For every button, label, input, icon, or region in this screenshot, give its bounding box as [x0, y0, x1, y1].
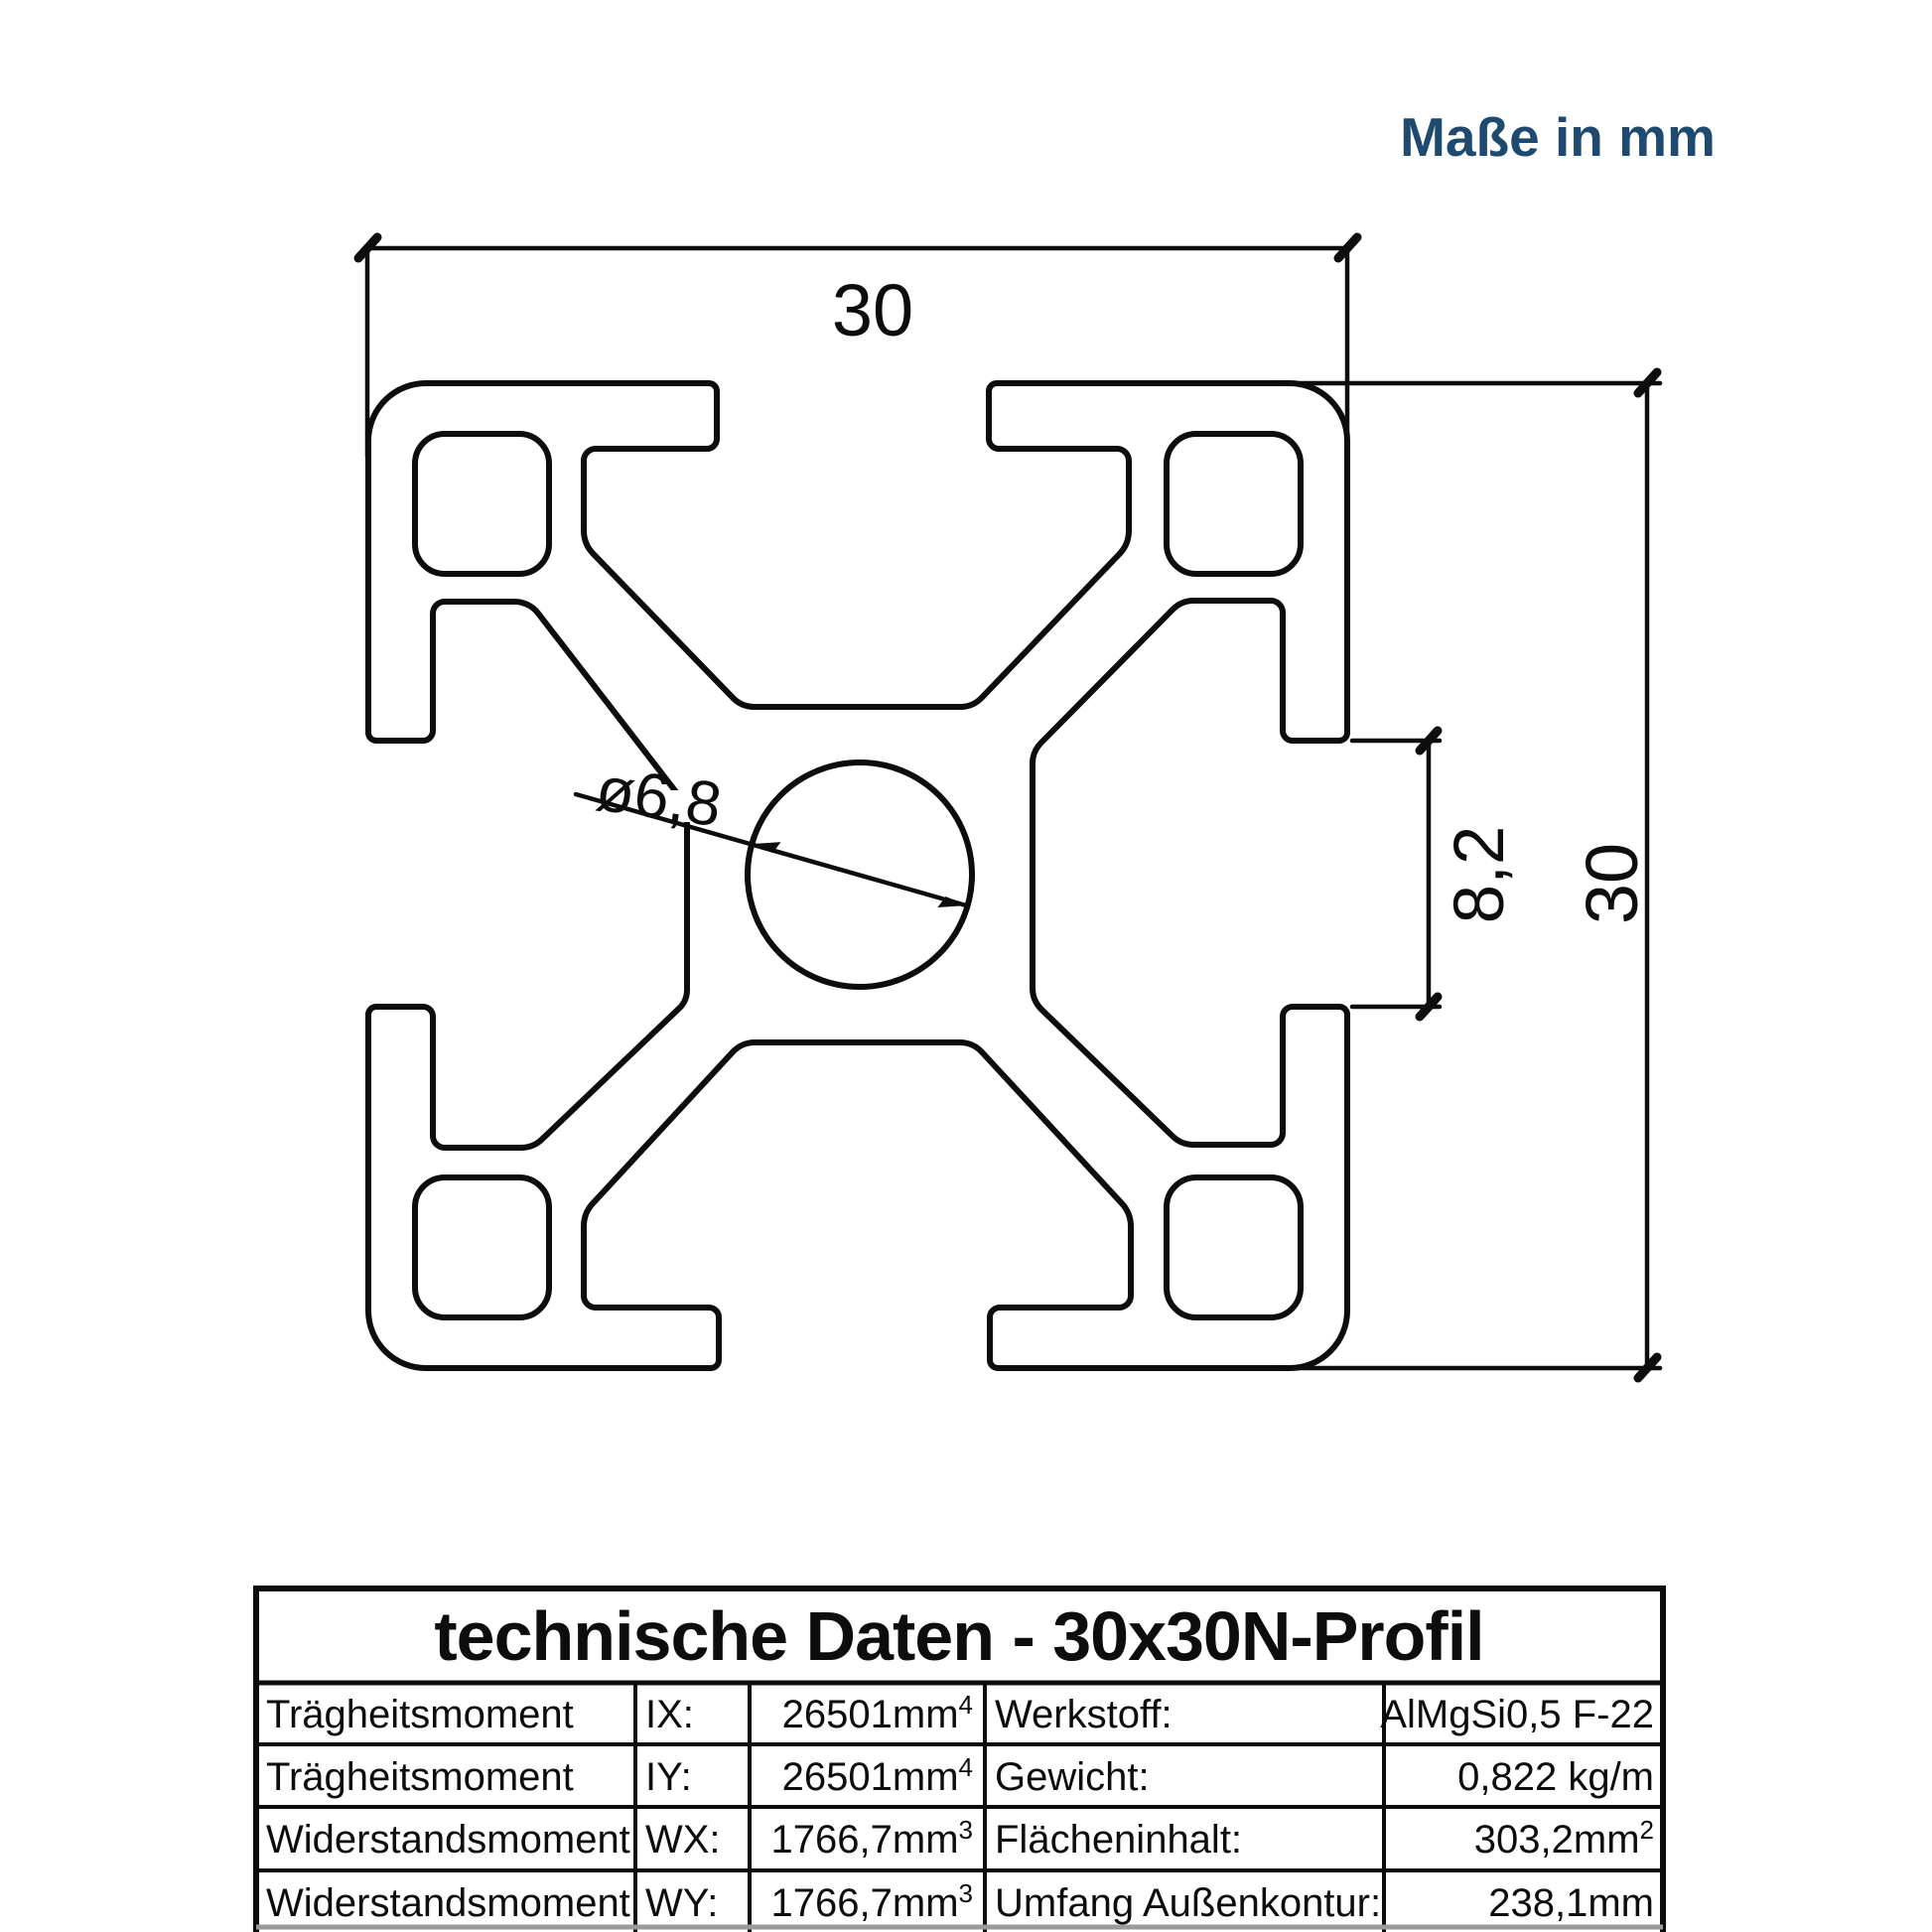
- svg-text:Werkstoff:: Werkstoff:: [995, 1693, 1173, 1736]
- svg-text:Widerstandsmoment: Widerstandsmoment: [266, 1881, 630, 1925]
- svg-text:WX:: WX:: [645, 1818, 721, 1862]
- svg-text:Trägheitsmoment: Trägheitsmoment: [266, 1693, 574, 1736]
- svg-text:Widerstandsmoment: Widerstandsmoment: [266, 1818, 630, 1862]
- svg-text:Trägheitsmoment: Trägheitsmoment: [266, 1755, 574, 1799]
- svg-text:IY:: IY:: [645, 1755, 692, 1799]
- svg-text:WY:: WY:: [645, 1881, 718, 1925]
- svg-text:30: 30: [832, 269, 913, 351]
- svg-text:30: 30: [1571, 843, 1653, 924]
- svg-text:IX:: IX:: [645, 1693, 694, 1736]
- svg-text:0,822 kg/m: 0,822 kg/m: [1457, 1755, 1654, 1799]
- svg-text:303,2mm2: 303,2mm2: [1474, 1815, 1654, 1862]
- svg-text:26501mm4: 26501mm4: [782, 1690, 973, 1736]
- svg-text:Gewicht:: Gewicht:: [995, 1755, 1150, 1799]
- svg-text:238,1mm: 238,1mm: [1488, 1881, 1654, 1925]
- svg-text:26501mm4: 26501mm4: [782, 1752, 973, 1799]
- svg-text:Umfang Außenkontur:: Umfang Außenkontur:: [995, 1881, 1381, 1925]
- svg-text:8,2: 8,2: [1441, 826, 1519, 924]
- svg-text:AlMgSi0,5 F-22: AlMgSi0,5 F-22: [1380, 1693, 1654, 1736]
- svg-text:Maße in mm: Maße in mm: [1400, 106, 1716, 168]
- svg-text:technische Daten - 30x30N-Prof: technische Daten - 30x30N-Profil: [434, 1597, 1483, 1675]
- svg-text:1766,7mm3: 1766,7mm3: [771, 1878, 973, 1925]
- svg-text:1766,7mm3: 1766,7mm3: [771, 1815, 973, 1862]
- svg-text:Flächeninhalt:: Flächeninhalt:: [995, 1818, 1242, 1862]
